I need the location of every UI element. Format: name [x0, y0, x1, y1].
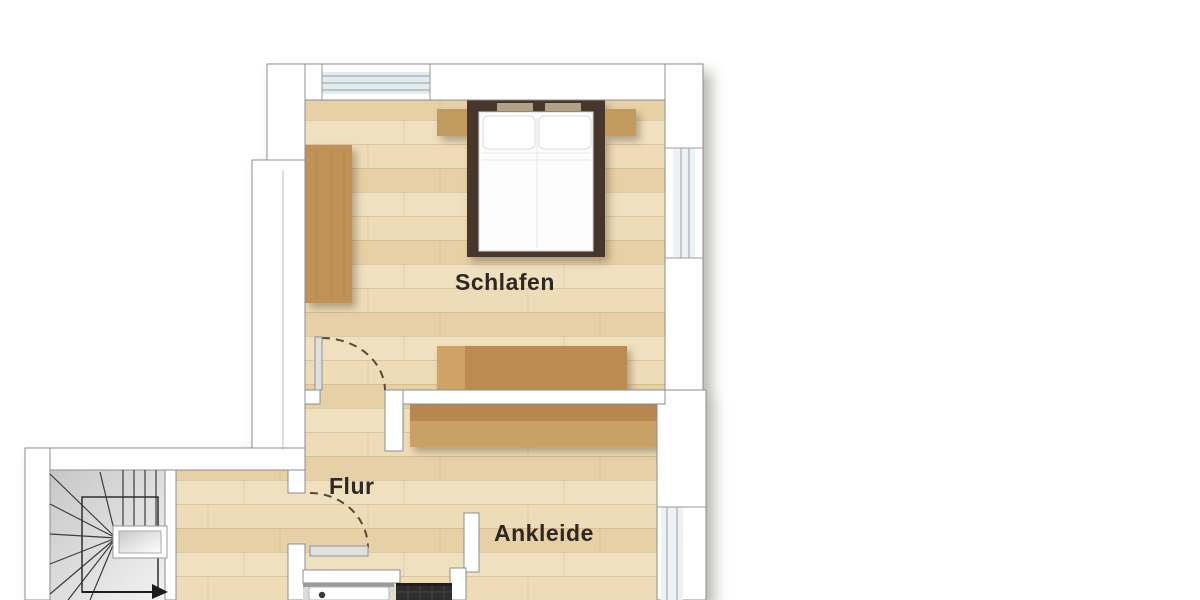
headboard-right — [545, 103, 581, 111]
room-label-schlafen: Schlafen — [455, 269, 555, 295]
door-leaf-landing — [310, 546, 368, 556]
dresser-top — [410, 403, 658, 423]
room-label-flur: Flur — [329, 473, 374, 499]
wall-ankleide-west-upper — [464, 513, 479, 572]
wall-exterior-left-lower — [25, 448, 50, 600]
pillow-right — [539, 116, 591, 149]
wall-ankleide-west-lower — [450, 568, 466, 600]
pillow-left — [483, 116, 535, 149]
floor-plan: Schlafen Flur Ankleide — [0, 0, 1200, 600]
bench-schlafen-left — [437, 346, 465, 390]
building: Schlafen Flur Ankleide — [25, 64, 706, 600]
wardrobe — [305, 145, 352, 303]
shower-edge — [303, 583, 394, 587]
dresser-bottom — [410, 421, 658, 447]
bath-tiles-edge — [396, 583, 452, 586]
door-leaf-schlafen — [315, 337, 322, 390]
window-right-upper-glass — [673, 148, 695, 258]
wall-schlafen-south-stub — [305, 390, 320, 404]
floorplan-page: Schlafen Flur Ankleide — [0, 0, 1200, 600]
wall-landing-door-stub-top — [288, 470, 305, 493]
bed — [467, 100, 605, 257]
shower-drain — [319, 592, 325, 598]
floor-landing — [170, 468, 305, 600]
wall-flur-ankleide-stub — [385, 390, 403, 451]
window-right-lower-glass — [661, 507, 683, 600]
stair-shaft-inner — [119, 531, 161, 553]
dresser-ankleide — [410, 403, 658, 447]
wall-schlafen-south — [385, 390, 665, 404]
bench-schlafen — [437, 346, 627, 390]
wall-exterior-left-mid — [252, 160, 305, 452]
headboard-left — [497, 103, 533, 111]
bathroom — [303, 583, 452, 600]
wall-lowerleft-top — [25, 448, 305, 470]
nightstand-right — [603, 109, 636, 136]
wall-exterior-left-upper — [267, 64, 305, 162]
wall-bath-top — [303, 570, 400, 583]
wall-landing-door-stub-bottom — [288, 544, 305, 600]
nightstand-left — [437, 109, 469, 136]
room-label-ankleide: Ankleide — [494, 520, 594, 546]
